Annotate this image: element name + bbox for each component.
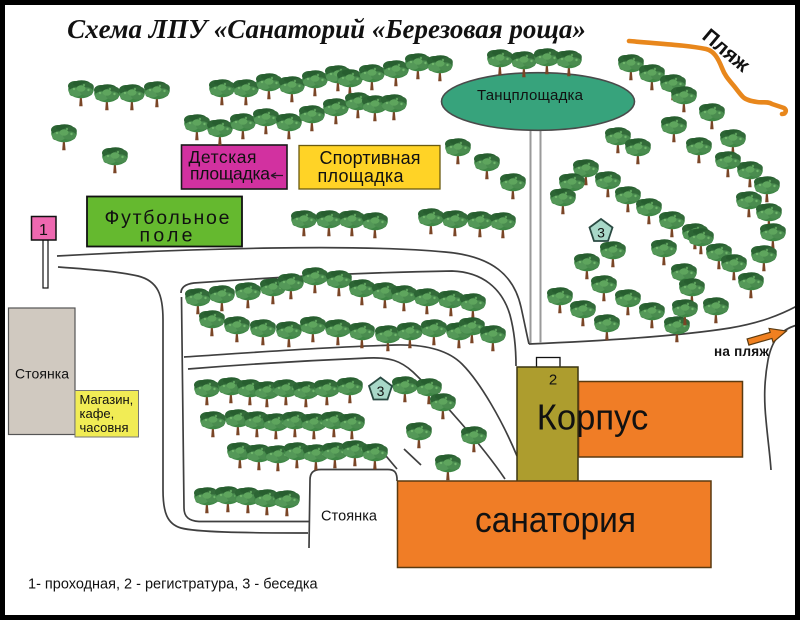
svg-text:2: 2 — [549, 372, 557, 389]
svg-text:3: 3 — [597, 225, 605, 241]
svg-text:Корпус: Корпус — [537, 397, 649, 438]
svg-text:1- проходная, 2 - регистратура: 1- проходная, 2 - регистратура, 3 - бесе… — [28, 577, 319, 593]
svg-text:кафе,: кафе, — [80, 406, 115, 421]
svg-text:Схема ЛПУ «Санаторий «Березова: Схема ЛПУ «Санаторий «Березовая роща» — [67, 14, 586, 44]
svg-text:Спортивная: Спортивная — [320, 148, 421, 168]
svg-text:на пляж: на пляж — [714, 344, 769, 359]
svg-text:часовня: часовня — [80, 420, 129, 435]
svg-text:Стоянка: Стоянка — [321, 509, 378, 525]
svg-text:площадка: площадка — [318, 166, 405, 186]
svg-text:3: 3 — [377, 383, 385, 399]
svg-text:Танцплощадка: Танцплощадка — [477, 87, 584, 104]
svg-text:поле: поле — [140, 225, 193, 247]
svg-text:1: 1 — [39, 222, 48, 239]
svg-text:площадка: площадка — [190, 164, 270, 184]
svg-text:санатория: санатория — [475, 499, 636, 540]
svg-text:Стоянка: Стоянка — [15, 366, 69, 382]
svg-text:Магазин,: Магазин, — [80, 392, 134, 407]
